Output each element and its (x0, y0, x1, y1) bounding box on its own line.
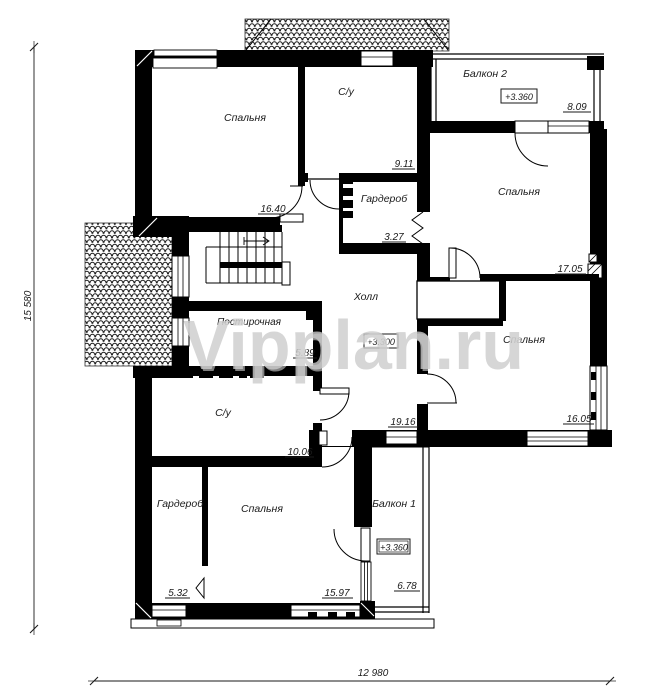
svg-text:Vipplan.ru: Vipplan.ru (183, 306, 524, 384)
svg-text:10.06: 10.06 (287, 447, 312, 458)
svg-text:Спальня: Спальня (241, 503, 283, 515)
svg-text:Гардероб: Гардероб (361, 193, 408, 205)
svg-text:16.40: 16.40 (260, 204, 285, 215)
svg-text:19.16: 19.16 (390, 417, 415, 428)
svg-text:8.09: 8.09 (567, 102, 587, 113)
svg-text:С/у: С/у (215, 407, 232, 419)
svg-text:17.05: 17.05 (557, 264, 582, 275)
svg-text:5.32: 5.32 (168, 588, 188, 599)
svg-text:15.97: 15.97 (324, 588, 349, 599)
svg-text:Балкон 2: Балкон 2 (463, 68, 507, 80)
svg-text:Балкон 1: Балкон 1 (372, 498, 416, 510)
svg-text:Спальня: Спальня (224, 112, 266, 124)
svg-text:Холл: Холл (353, 291, 378, 303)
svg-text:Гардероб: Гардероб (157, 498, 204, 510)
svg-text:9.11: 9.11 (395, 159, 414, 170)
svg-text:6.78: 6.78 (397, 581, 417, 592)
svg-text:+3.360: +3.360 (505, 92, 533, 102)
svg-text:3.27: 3.27 (384, 232, 404, 243)
svg-text:16.05: 16.05 (566, 414, 591, 425)
svg-text:+3.360: +3.360 (380, 543, 408, 553)
svg-text:15 580: 15 580 (23, 290, 34, 321)
svg-text:Спальня: Спальня (498, 186, 540, 198)
svg-text:С/у: С/у (338, 86, 355, 98)
svg-text:12 980: 12 980 (358, 668, 389, 679)
